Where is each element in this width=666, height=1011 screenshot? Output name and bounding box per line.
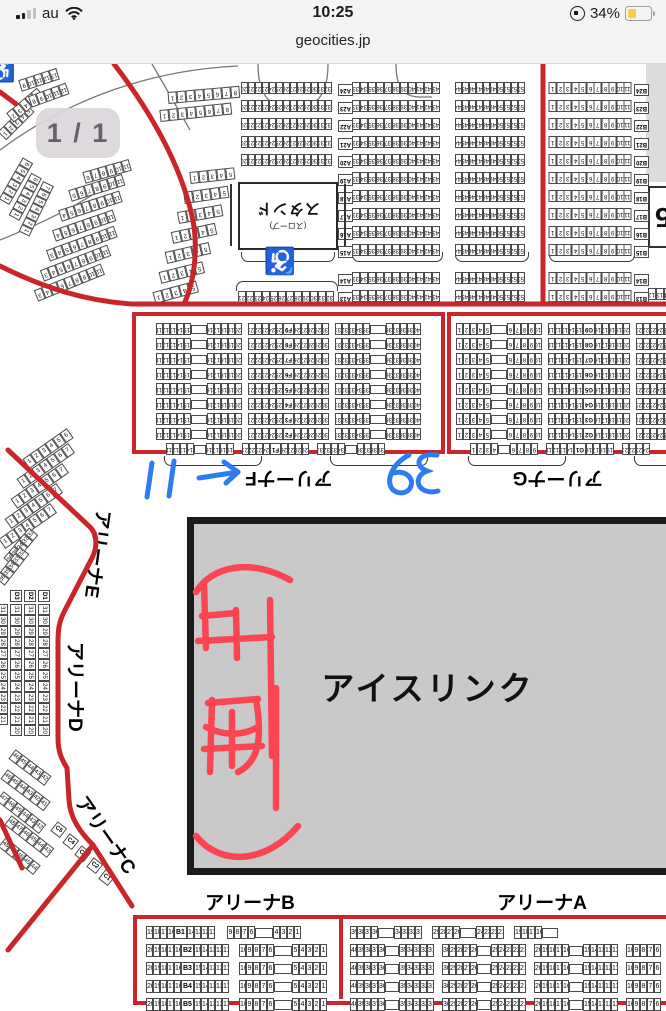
row-label: A20 [338, 156, 353, 168]
row-label: F6 [283, 368, 294, 380]
seat-strip: A13 [338, 292, 353, 304]
row-label: B1 [174, 926, 187, 939]
seat-strip: A20 [338, 156, 353, 168]
seat-strip: 4039383736353433323130292827262524232221… [350, 944, 661, 957]
seat-strip: 19181716B11413121198764321 [146, 926, 301, 939]
row-label: F1 [270, 443, 281, 455]
seat-strip: A14 [338, 274, 353, 286]
seat-strip: 44454647484950515253 [455, 190, 525, 202]
seat-strip: B21 [634, 138, 649, 150]
seat-strip: 44454647484950515253 [455, 226, 525, 238]
row-label: G8 [583, 338, 595, 350]
safari-header: au 10:25 34% geocities.jp [0, 0, 666, 64]
seat-strip: 4039383736353433323130292827262524232221… [350, 998, 661, 1011]
row-label: B19 [634, 174, 649, 186]
seat-strip: 44454647484950515253 [455, 272, 525, 284]
stand-sublabel: (スロープ) [270, 220, 307, 231]
stand-box: (スロープ) スタンド [238, 182, 338, 250]
seat-strip: 3334353637383940414243 [352, 172, 440, 184]
seat-strip: 3334353637383940414243 [352, 82, 440, 94]
row-label: C5 [50, 821, 67, 838]
row-label: B21 [634, 138, 649, 150]
section-label-arena-f: アリーナF [227, 466, 351, 493]
seat-strip: B14 [634, 274, 649, 286]
row-label: F9 [283, 323, 294, 335]
seat-strip: 1234567891011 [549, 244, 632, 256]
seat-strip: C4 [62, 833, 79, 850]
seat-strip: A24 [338, 84, 353, 96]
seat-strip: B22 [634, 120, 649, 132]
seat-strip: C3 [74, 845, 91, 862]
section-label-arena-e: アリーナE [79, 508, 118, 600]
seat-strip: 1234567891011 [549, 208, 632, 220]
section-label-arena-b: アリーナB [190, 888, 310, 915]
seat-strip: 3334353637383940414243 [352, 100, 440, 112]
seat-strip: 123456789101112131415G416171819202122232… [456, 398, 666, 410]
seat-strip: 111213141516171819202122232425F726272829… [156, 353, 421, 365]
seat-strip: 3130292827262524232221 [0, 604, 8, 725]
seat-row-bracket [634, 456, 666, 466]
seat-strip: 123456789101112131415G816171819202122232… [456, 338, 666, 350]
seat-strip: 3334353637383940414243 [352, 118, 440, 130]
seat-strip: 12345678 [167, 86, 240, 104]
url-bar[interactable]: geocities.jp [0, 32, 666, 49]
seat-strip: 12345 [177, 204, 223, 224]
row-label: F2 [283, 428, 294, 440]
row-label: B17 [634, 210, 649, 222]
section-label-arena-a: アリーナA [482, 888, 602, 915]
seat-strip: 3334353637383940414243 [352, 244, 440, 256]
seat-strip: 1234567891011 [549, 136, 632, 148]
seat-strip: 3334353637383940414243 [352, 154, 440, 166]
seat-strip: 12345678 [159, 103, 232, 122]
row-label: G9 [583, 323, 595, 335]
row-label: G7 [583, 353, 595, 365]
row-label: C3 [74, 845, 91, 862]
seat-strip: 111213141516171819202122232425F426272829… [156, 398, 421, 410]
seat-strip: 3334353637383940414243 [352, 272, 440, 284]
seat-strip: D2 [24, 590, 36, 602]
seat-strip: 44454647484950515253 [455, 100, 525, 112]
seat-strip: B15 [634, 246, 649, 258]
row-label: A21 [338, 138, 353, 150]
seat-strip: 1234567891011 [549, 272, 632, 284]
row-label: G3 [583, 413, 595, 425]
seat-strip: 12345 [183, 186, 229, 204]
seat-strip: 20212223242526272829303132 [241, 136, 332, 148]
seat-strip: 44454647484950515253 [455, 208, 525, 220]
row-label: A22 [338, 120, 353, 132]
seat-strip: 2019181716B5151413121110987654321 [146, 998, 327, 1011]
row-label: B4 [181, 980, 194, 993]
row-label: G2 [583, 428, 595, 440]
row-label: B18 [634, 192, 649, 204]
clock: 10:25 [0, 4, 666, 22]
seat-strip: 1234567891011 [549, 82, 632, 94]
row-label: B3 [181, 962, 194, 975]
section-label-arena-g: アリーナG [496, 466, 620, 493]
seat-strip: B19 [634, 174, 649, 186]
seat-strip: 111213141516171819202122232425F226272829… [156, 428, 421, 440]
seat-strip: 313029282726252423222120 [38, 604, 50, 736]
seat-strip: 123456789101112131415G316171819202122232… [456, 413, 666, 425]
row-label: A13 [338, 292, 353, 304]
seat-strip: 4039383736353433323130292827262524232221… [350, 962, 661, 975]
seat-strip: C5 [50, 821, 67, 838]
seat-strip: 44454647484950515253 [455, 244, 525, 256]
seat-strip: B18 [634, 192, 649, 204]
seat-strip: 2019181716B4151413121110987654321 [146, 980, 327, 993]
row-label: F8 [283, 338, 294, 350]
row-label: D3 [10, 590, 22, 602]
seat-strip: 12345 [171, 223, 218, 244]
seat-strip: 212223242526272829303132 [238, 291, 334, 303]
seat-strip: 1234678911121314G11617181921222324 [470, 443, 650, 455]
seat-strip: B20 [634, 156, 649, 168]
seat-strip: 1234567891011 [549, 172, 632, 184]
seat-strip: 111213141516171819202122232425F526272829… [156, 383, 421, 395]
seat-strip: B23 [634, 102, 649, 114]
seat-strip: 3334353637383940414243 [352, 190, 440, 202]
row-label: A15 [338, 246, 353, 258]
seat-strip: A23 [338, 102, 353, 114]
seat-strip: 44454647484950515253 [455, 82, 525, 94]
seat-strip: 12345 [189, 167, 235, 184]
row-label: B2 [181, 944, 194, 957]
row-label: A14 [338, 274, 353, 286]
seat-strip: 3635343332 [0, 547, 29, 586]
seat-strip: 44454647484950515253 [455, 154, 525, 166]
row-label: B23 [634, 102, 649, 114]
seat-strip: 123456789101112131415G716171819202122232… [456, 353, 666, 365]
seat-strip: 1234567891011 [549, 118, 632, 130]
row-label: F7 [283, 353, 294, 365]
seat-strip: 111213141516171819202122232425F326272829… [156, 413, 421, 425]
seat-strip: 121314 [648, 288, 666, 300]
row-label: B24 [634, 84, 649, 96]
seat-strip: 111213141516171819202122232425F926272829… [156, 323, 421, 335]
seat-row-bracket [164, 456, 262, 466]
seat-strip: 20212223242526272829303132 [241, 118, 332, 130]
stand-wall-left [230, 184, 232, 246]
section-label-arena-d: アリーナD [63, 642, 90, 732]
seat-strip: 12345 [159, 261, 206, 284]
seat-strip: 1234567891011 [549, 190, 632, 202]
status-bar: au 10:25 34% [0, 3, 666, 25]
seat-strip: 123456789101112131415G616171819202122232… [456, 368, 666, 380]
seat-strip: C1 [98, 869, 115, 886]
rotation-lock-icon [570, 6, 585, 21]
row-label: A24 [338, 84, 353, 96]
row-label: G6 [583, 368, 595, 380]
row-label: G1 [574, 443, 586, 455]
seat-strip: 313029282726252423222120 [24, 604, 36, 736]
seat-strip: D1 [38, 590, 50, 602]
seat-strip: 313029282726252423222120 [10, 604, 22, 736]
seat-strip: 123456789101112131415G516171819202122232… [456, 383, 666, 395]
seat-strip: 111213141516171819202122232425F826272829… [156, 338, 421, 350]
seat-strip: 12345 [165, 242, 212, 264]
seat-strip: 20212223242526272829303132 [241, 154, 332, 166]
ice-rink-label: アイスリンク [296, 662, 560, 710]
row-label: F5 [283, 383, 294, 395]
seat-strip: 123456789101112131415G216171819202122232… [456, 428, 666, 440]
seat-strip: 44454647484950515253 [455, 172, 525, 184]
seat-strip: D3 [10, 590, 22, 602]
seat-row-bracket [236, 281, 338, 291]
battery-percent: 34% [590, 5, 620, 22]
row-label: B5 [181, 998, 194, 1011]
seat-strip: 44454647484950515253 [455, 290, 525, 302]
seat-strip: A22 [338, 120, 353, 132]
seat-row-bracket [330, 456, 428, 466]
seat-strip: 123456789101112131415G916171819202122232… [456, 323, 666, 335]
seat-strip: 3334353637383940414243 [352, 290, 440, 302]
row-label: B15 [634, 246, 649, 258]
seat-strip: 44454647484950515253 [455, 136, 525, 148]
seat-strip: A21 [338, 138, 353, 150]
row-label: C1 [98, 869, 115, 886]
seat-strip: 3938373634333231292827262423222119181716 [350, 926, 558, 939]
row-label: D1 [38, 590, 50, 602]
seat-strip: 3334353637383940414243 [352, 136, 440, 148]
seat-strip: 3334353637383940414243 [352, 226, 440, 238]
seat-strip: 1234567891011 [549, 100, 632, 112]
seat-strip: B16 [634, 228, 649, 240]
seat-strip: 111213141617181921222324F126272829313233… [166, 443, 385, 455]
screenshot-root: { "status_bar": { "carrier": "au", "time… [0, 0, 666, 999]
seat-strip: B17 [634, 210, 649, 222]
row-label: B13 [634, 292, 649, 304]
stand-label: スタンド [256, 199, 320, 220]
seat-strip: 12345 [152, 281, 199, 304]
seat-strip: 111213141516171819202122232425F626272829… [156, 368, 421, 380]
seat-strip: 1234567891011 [549, 154, 632, 166]
row-label: A23 [338, 102, 353, 114]
seat-strip: 20212223242526272829303132 [241, 82, 332, 94]
row-label: B14 [634, 274, 649, 286]
row-label: F3 [283, 413, 294, 425]
wheelchair-icon: ♿ [264, 248, 296, 274]
row-label: D2 [24, 590, 36, 602]
gate-number-label: 5 [655, 201, 666, 233]
seat-strip: 1234567891011 [549, 226, 632, 238]
gate-number-box: 5 [648, 186, 666, 248]
seat-strip: 20212223242526272829303132 [241, 100, 332, 112]
row-label: C4 [62, 833, 79, 850]
seat-strip: 2019181716B3151413121110987654321 [146, 962, 327, 975]
row-label: B22 [634, 120, 649, 132]
seat-row-bracket [468, 456, 566, 466]
arena-ab-divider [339, 915, 343, 999]
seat-strip: 3334353637383940414243 [352, 208, 440, 220]
page-indicator-badge: 1 / 1 [36, 108, 120, 158]
row-label: C2 [86, 857, 103, 874]
row-label: F4 [283, 398, 294, 410]
seat-strip: A15 [338, 246, 353, 258]
seat-strip: 44454647484950515253 [455, 118, 525, 130]
row-label: B20 [634, 156, 649, 168]
seat-strip: C2 [86, 857, 103, 874]
seat-strip: B24 [634, 84, 649, 96]
seat-strip: 4039383736353433323130292827262524232221… [350, 980, 661, 993]
seat-strip: B13 [634, 292, 649, 304]
row-label: B16 [634, 228, 649, 240]
seat-strip: 2019181716B2151413121110987654321 [146, 944, 327, 957]
row-label: G4 [583, 398, 595, 410]
stand-wall-right [344, 184, 346, 246]
section-label-arena-c: アリーナC [70, 790, 144, 879]
seat-strip: 1234567891011 [549, 290, 632, 302]
battery-icon [625, 6, 652, 21]
row-label: G5 [583, 383, 595, 395]
